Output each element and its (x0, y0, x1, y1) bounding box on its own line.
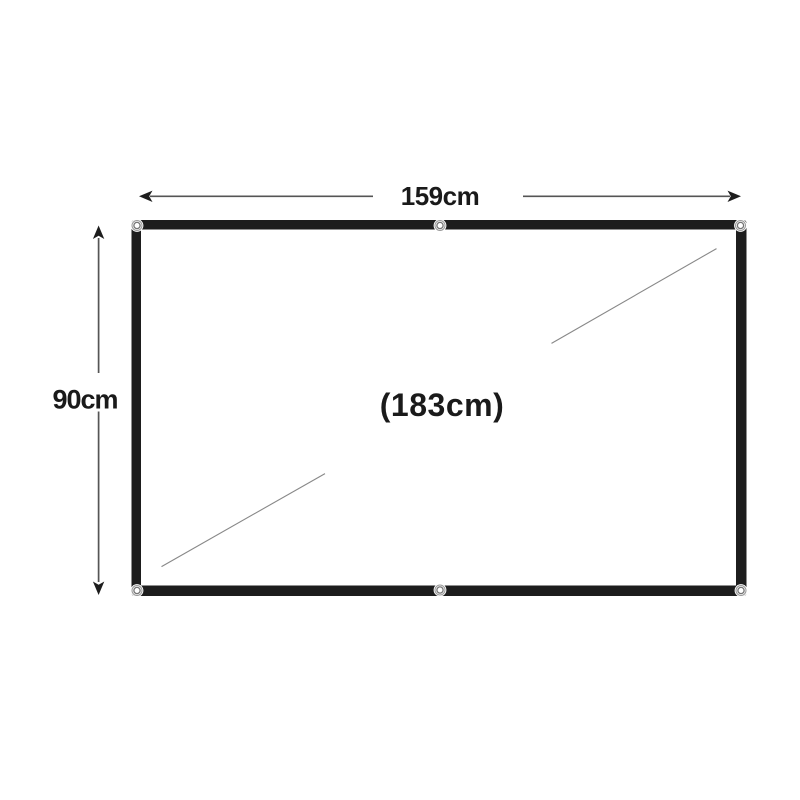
svg-text:159cm: 159cm (401, 181, 479, 211)
svg-text:(183cm): (183cm) (380, 387, 504, 423)
svg-text:90cm: 90cm (52, 385, 117, 415)
